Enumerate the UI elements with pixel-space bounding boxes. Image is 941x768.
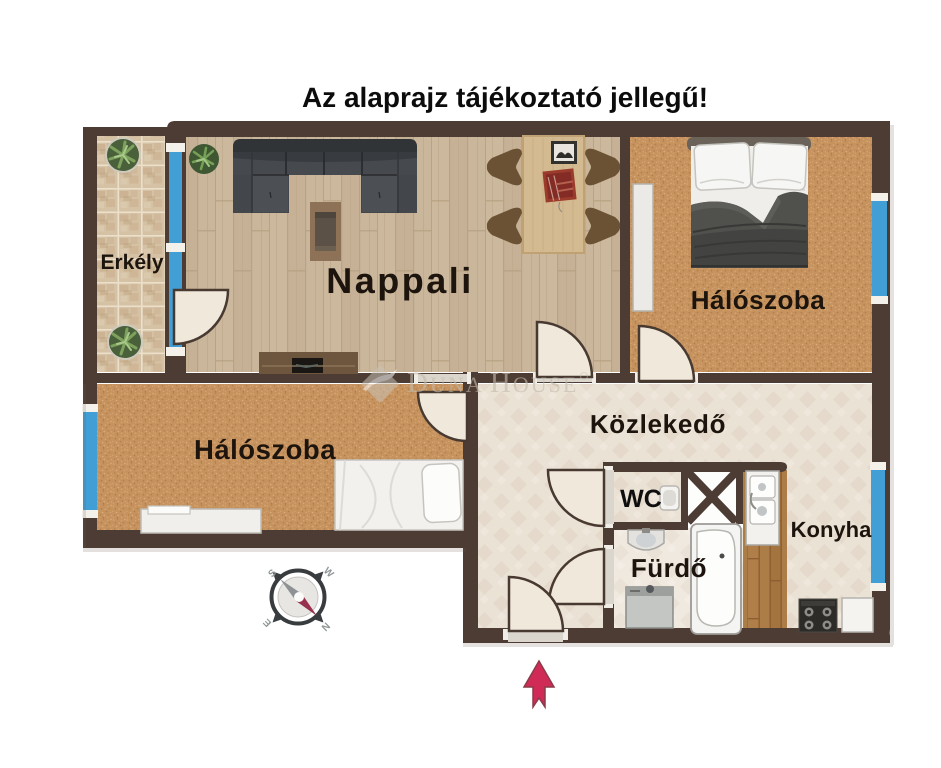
- svg-text:Erkély: Erkély: [100, 251, 163, 274]
- svg-text:Hálószoba: Hálószoba: [194, 434, 336, 465]
- svg-text:Közlekedő: Közlekedő: [590, 409, 726, 439]
- svg-text:Nappali: Nappali: [326, 260, 474, 301]
- svg-text:DUNA HOUSE: DUNA HOUSE: [407, 367, 578, 399]
- svg-text:Hálószoba: Hálószoba: [691, 285, 826, 315]
- svg-text:WC: WC: [620, 485, 662, 513]
- svg-text:Az alaprajz tájékoztató jelleg: Az alaprajz tájékoztató jellegű!: [302, 82, 708, 113]
- svg-text:Fürdő: Fürdő: [631, 553, 707, 583]
- svg-text:Konyha: Konyha: [791, 517, 872, 542]
